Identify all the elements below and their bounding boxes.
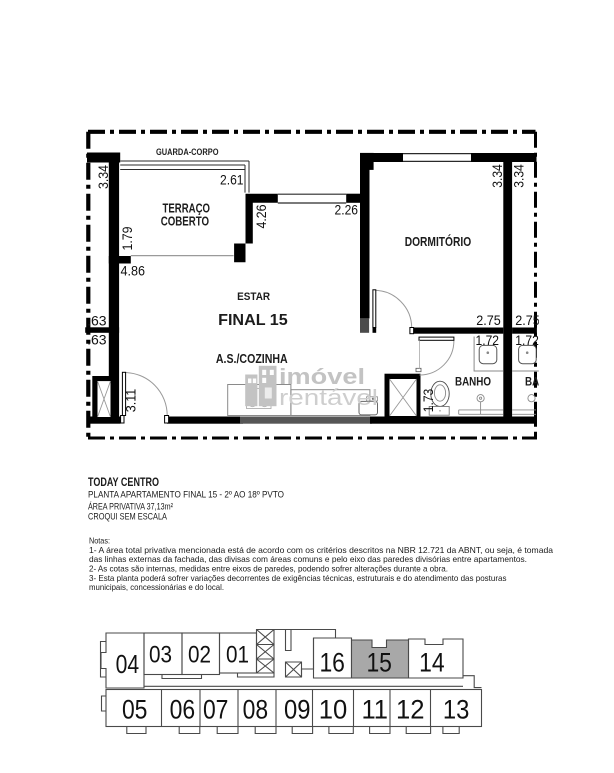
svg-text:1.72: 1.72 [476, 332, 500, 348]
svg-text:.63: .63 [87, 312, 107, 328]
svg-text:BANHO: BANHO [455, 375, 491, 389]
svg-text:1- A área total privativa menc: 1- A área total privativa mencionada est… [89, 546, 553, 555]
svg-text:Notas:: Notas: [89, 536, 110, 545]
svg-text:1.72: 1.72 [515, 332, 539, 348]
svg-text:05: 05 [122, 694, 148, 724]
svg-text:08: 08 [243, 694, 269, 724]
svg-text:A.S./COZINHA: A.S./COZINHA [216, 351, 288, 366]
svg-text:11: 11 [361, 694, 388, 724]
svg-text:2.75: 2.75 [476, 312, 501, 328]
svg-text:04: 04 [116, 649, 140, 679]
svg-text:3.34: 3.34 [489, 164, 505, 188]
svg-text:01: 01 [226, 641, 249, 668]
svg-text:07: 07 [203, 694, 229, 724]
svg-text:3.11: 3.11 [122, 389, 138, 413]
svg-text:CROQUI SEM ESCALA: CROQUI SEM ESCALA [88, 512, 168, 523]
svg-text:2.75: 2.75 [515, 312, 540, 328]
svg-text:rentável: rentável [279, 385, 378, 410]
svg-text:16: 16 [319, 648, 345, 678]
svg-text:GUARDA-CORPO: GUARDA-CORPO [156, 147, 219, 158]
svg-text:TODAY CENTRO: TODAY CENTRO [88, 477, 159, 489]
svg-text:das linhas externas da fachada: das linhas externas da fachada, das divi… [89, 555, 527, 564]
svg-text:2- As cotas são internas, medi: 2- As cotas são internas, medidas entre … [89, 565, 448, 574]
svg-text:2.61: 2.61 [220, 172, 244, 188]
svg-text:3- Esta planta poderá sofrer v: 3- Esta planta poderá sofrer variações d… [89, 574, 507, 583]
svg-text:PLANTA APARTAMENTO FINAL 15 -: PLANTA APARTAMENTO FINAL 15 - 2º AO 18º … [88, 489, 284, 500]
svg-text:municipais, concessionárias e: municipais, concessionárias e do local. [89, 583, 224, 592]
svg-text:14: 14 [419, 648, 445, 678]
svg-text:06: 06 [170, 694, 196, 724]
svg-text:.63: .63 [87, 331, 107, 347]
svg-text:2.26: 2.26 [335, 202, 359, 218]
svg-text:1.79: 1.79 [119, 226, 135, 250]
svg-text:3.34: 3.34 [95, 165, 111, 189]
svg-text:1.73: 1.73 [420, 389, 436, 413]
svg-text:4.26: 4.26 [253, 204, 269, 228]
svg-text:4.86: 4.86 [121, 263, 146, 279]
svg-text:02: 02 [188, 641, 211, 668]
svg-text:10: 10 [319, 694, 348, 724]
svg-text:DORMITÓRIO: DORMITÓRIO [405, 234, 472, 249]
svg-text:TERRAÇO: TERRAÇO [163, 201, 211, 215]
svg-text:FINAL 15: FINAL 15 [218, 312, 288, 329]
svg-text:15: 15 [366, 648, 392, 678]
svg-text:12: 12 [396, 694, 425, 724]
svg-text:COBERTO: COBERTO [161, 215, 210, 229]
svg-text:13: 13 [443, 694, 470, 724]
svg-text:09: 09 [284, 694, 311, 724]
svg-text:3.34: 3.34 [511, 164, 527, 188]
svg-text:ESTAR: ESTAR [237, 291, 270, 303]
svg-text:03: 03 [149, 641, 172, 668]
